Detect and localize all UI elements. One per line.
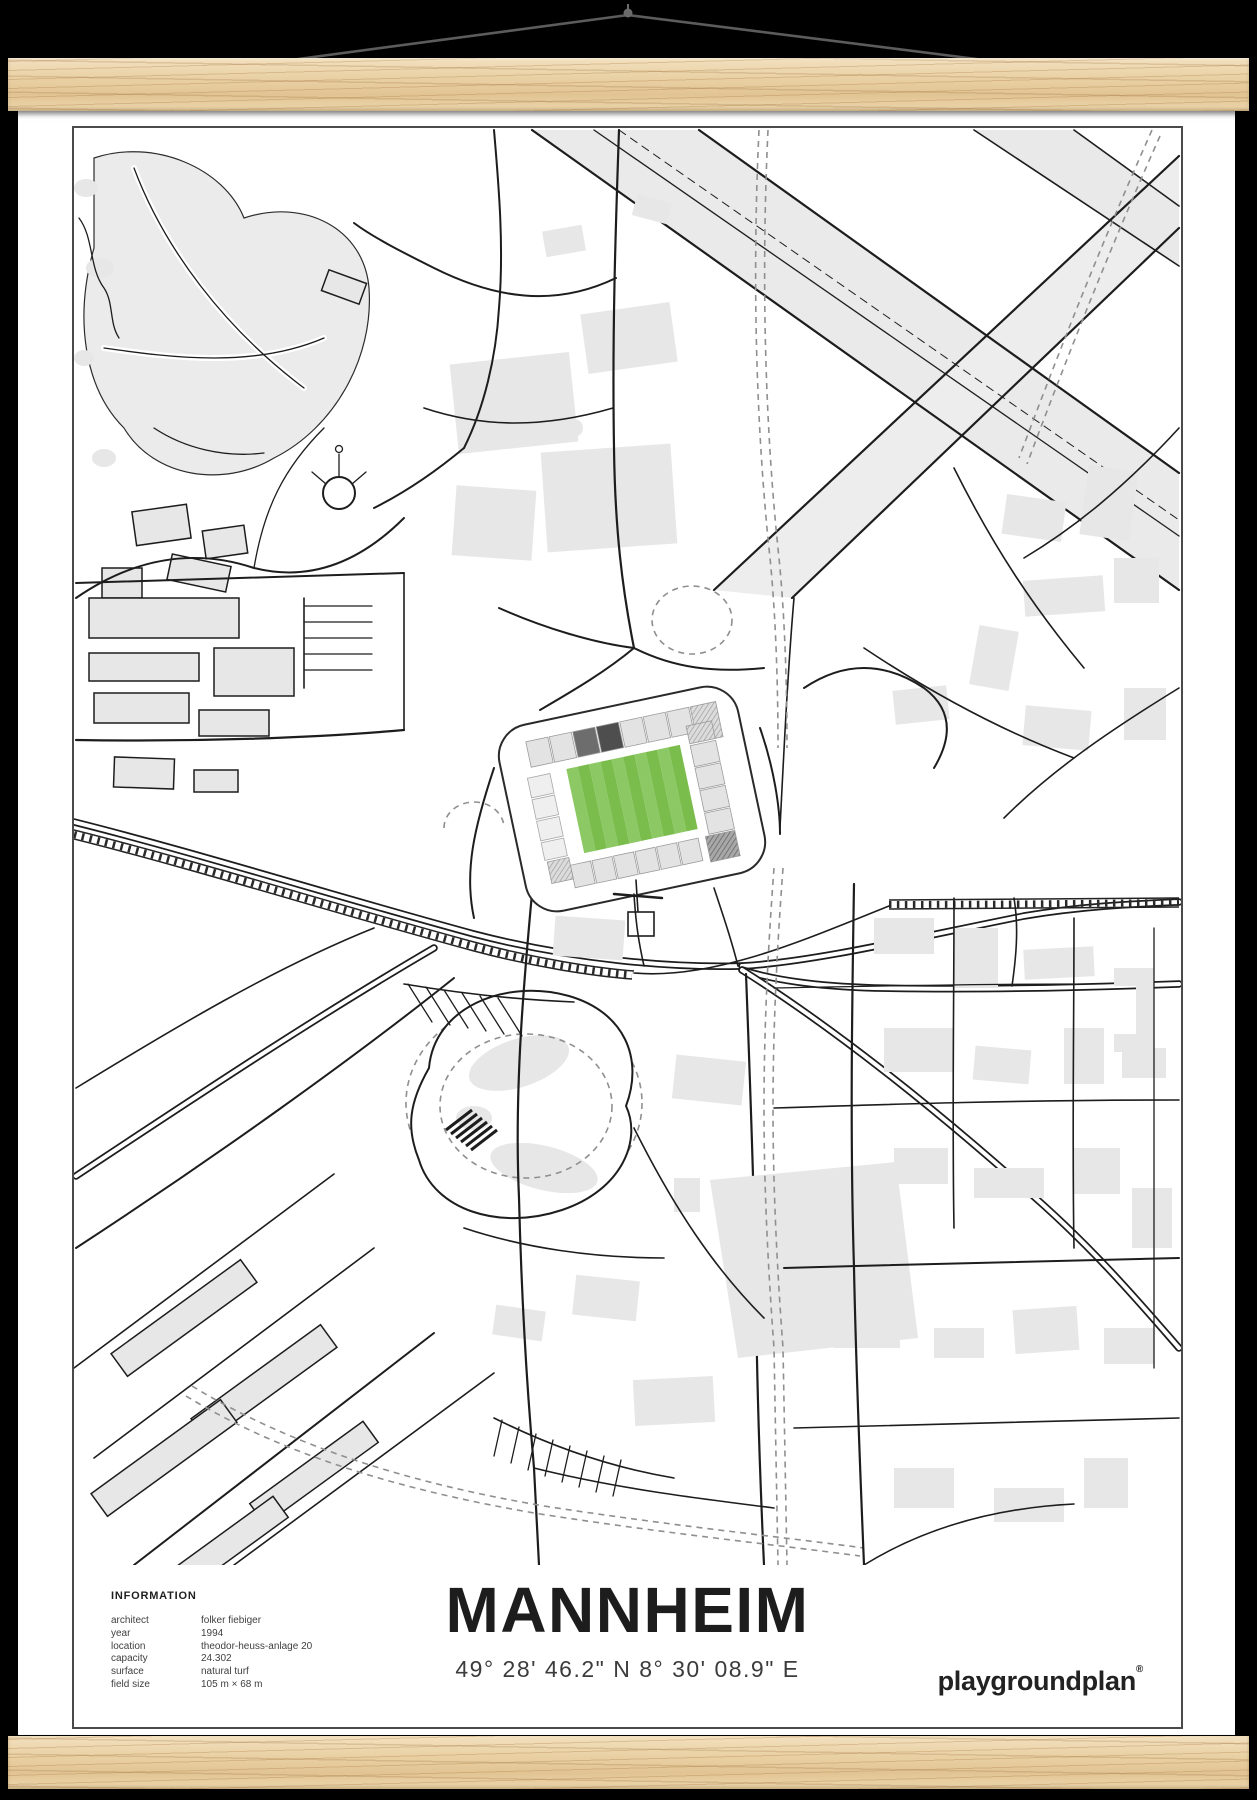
poster-scene: INFORMATION architectfolker fiebiger yea… — [0, 0, 1257, 1800]
brand-logo: playgroundplan® — [938, 1666, 1143, 1697]
hanger-knob-icon — [624, 9, 633, 18]
map-frame: INFORMATION architectfolker fiebiger yea… — [72, 126, 1183, 1729]
map-content — [74, 130, 1179, 1600]
poster-title: MANNHEIM — [74, 1578, 1181, 1642]
poster-paper: INFORMATION architectfolker fiebiger yea… — [18, 110, 1235, 1735]
registered-mark-icon: ® — [1136, 1664, 1143, 1675]
park-area — [74, 152, 404, 598]
stadium-site — [444, 586, 780, 966]
district-south — [186, 872, 918, 1565]
top-hanger-bar — [8, 58, 1249, 111]
district-southwest — [74, 928, 494, 1600]
brand-name: playgroundplan — [938, 1666, 1136, 1696]
stadium-city-map — [74, 128, 1181, 1727]
bottom-hanger-bar — [8, 1736, 1249, 1789]
industrial-west — [76, 573, 404, 792]
park-hill — [404, 984, 642, 1218]
